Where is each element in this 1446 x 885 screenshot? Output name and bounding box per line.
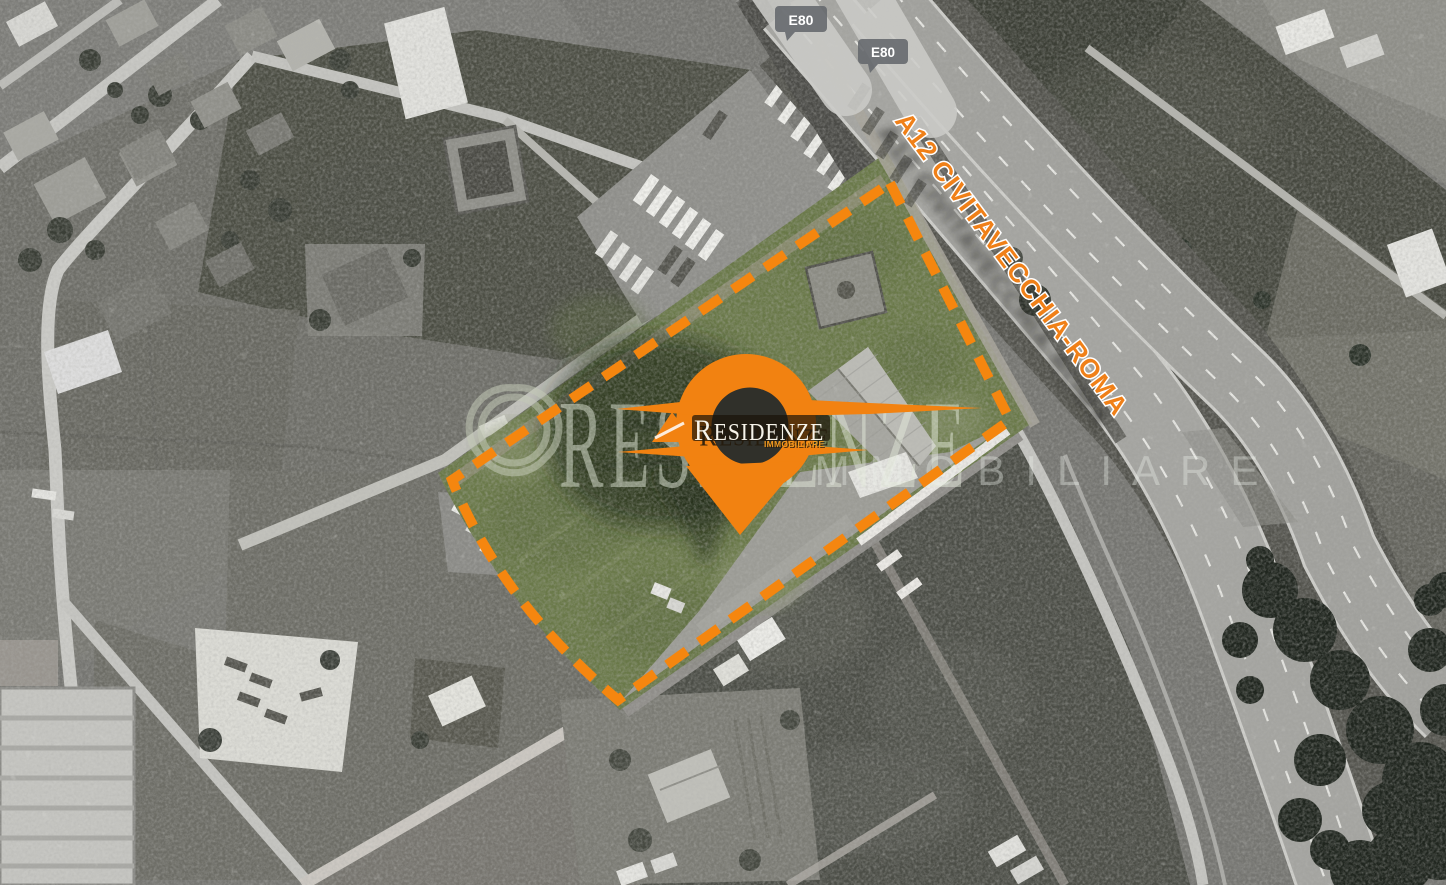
svg-text:IMMOBILIARE: IMMOBILIARE [783, 447, 1278, 494]
svg-text:E80: E80 [789, 12, 814, 28]
svg-text:IMMOBILIARE: IMMOBILIARE [764, 439, 824, 449]
svg-text:E80: E80 [871, 45, 895, 60]
